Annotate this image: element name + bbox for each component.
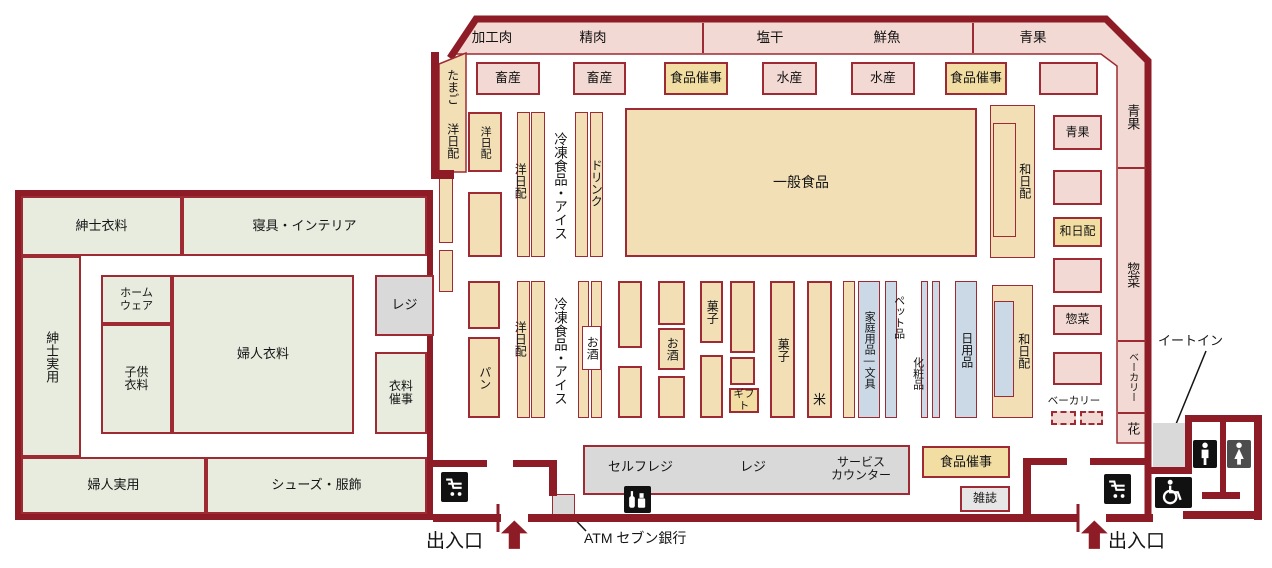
wall-restroom-divider-base	[1202, 492, 1240, 499]
dept-womens-daily-label: 婦人実用	[87, 478, 139, 493]
dept-gift: ギフト	[729, 388, 759, 413]
dept-western-dairy-box: 洋日配	[468, 112, 502, 172]
clothing-register-label: レジ	[391, 298, 417, 313]
dept-japanese-dairy-box-label: 和日配	[1059, 225, 1095, 238]
dept-box-unlabeled-r1	[1053, 170, 1102, 205]
label-western-dairy-upper: 洋日配	[511, 150, 528, 212]
shelf-unlabeled-4	[618, 366, 642, 418]
label-western-dairy-strip: 洋日配	[443, 112, 461, 170]
label-band-fresh-fish: 鮮魚	[862, 27, 912, 49]
dept-daily-goods: 日用品	[955, 281, 977, 418]
dept-homeware: ホーム ウェア	[101, 275, 172, 324]
dept-shoes-accessories-label: シューズ・服飾	[271, 478, 361, 493]
wall-eatin-right	[1185, 415, 1192, 472]
label-japanese-dairy-lower: 和日配	[1014, 318, 1032, 383]
dept-food-event-2-label: 食品催事	[950, 71, 1002, 86]
label-register: レジ	[728, 456, 778, 478]
label-eggs: たまご	[443, 64, 461, 110]
label-japanese-dairy-upper: 和日配	[1015, 148, 1033, 213]
atm-label: ATM セブン銀行	[584, 528, 686, 548]
label-band-produce-top-label: 青果	[1020, 30, 1047, 45]
wall-restroom-right	[1254, 415, 1262, 520]
shelf-unlabeled-9	[730, 357, 755, 385]
dept-deli-box-label: 惣菜	[1065, 313, 1089, 326]
label-band-fresh-fish-label: 鮮魚	[874, 30, 901, 45]
dept-magazines: 雑誌	[960, 486, 1010, 512]
wall-bottom-left	[433, 514, 501, 522]
dept-snacks-2: 菓子	[770, 281, 795, 418]
wall-restroom-divider	[1220, 415, 1226, 495]
dept-womens-daily: 婦人実用	[21, 457, 206, 514]
dept-general-food-label: 一般食品	[773, 175, 829, 191]
label-frozen-ice-lower-label: 冷凍食品・アイス	[552, 297, 567, 405]
dept-alcohol-2-label: お酒	[665, 337, 678, 361]
dept-alcohol-2: お酒	[658, 328, 685, 370]
dept-livestock-1-label: 畜産	[495, 71, 521, 86]
dept-bread-label: パン	[477, 366, 490, 390]
label-western-dairy-upper-label: 洋日配	[513, 163, 526, 199]
label-register-label: レジ	[740, 460, 766, 475]
label-cosmetics: 化粧品	[910, 342, 925, 404]
shelf-unlabeled-3	[618, 281, 642, 348]
label-drinks-label: ドリンク	[589, 159, 602, 207]
label-eggs-label: たまご	[445, 69, 458, 105]
dept-food-event-1: 食品催事	[664, 62, 728, 95]
dept-bread: パン	[468, 337, 500, 418]
label-western-dairy-strip-label: 洋日配	[445, 123, 458, 159]
dept-snacks-1: 菓子	[700, 281, 723, 343]
wall-egg-cap	[431, 170, 454, 179]
dept-western-dairy-box-label: 洋日配	[479, 126, 491, 159]
label-rice-label: 米	[813, 393, 826, 408]
dept-bedding-interior: 寝具・インテリア	[182, 196, 427, 256]
label-service-counter-label: サービス カウンター	[831, 456, 891, 483]
label-rice: 米	[809, 388, 830, 412]
dept-homeware-label: ホーム ウェア	[120, 287, 153, 312]
restroom-men-icon	[1193, 440, 1217, 468]
label-band-flower: 花	[1120, 416, 1144, 440]
dept-seafood-1-label: 水産	[776, 71, 802, 86]
bottle-recycle-icon	[624, 486, 651, 513]
label-alcohol-1: お酒	[582, 326, 601, 370]
wheelchair-icon	[1155, 477, 1192, 508]
dept-snacks-2-label: 菓子	[776, 338, 789, 362]
dept-general-food: 一般食品	[625, 108, 977, 257]
wall-checkout-corner-horiz	[1031, 458, 1067, 465]
dept-bedding-interior-label: 寝具・インテリア	[252, 219, 356, 234]
label-drinks: ドリンク	[587, 145, 604, 220]
dept-food-event-2: 食品催事	[945, 62, 1007, 95]
label-frozen-ice-lower: 冷凍食品・アイス	[549, 278, 570, 424]
shelf-unlabeled-8	[730, 281, 755, 353]
label-self-checkout-label: セルフレジ	[608, 460, 673, 475]
clothing-register: レジ	[375, 275, 434, 336]
entrance-label-right: 出入口	[1108, 526, 1165, 553]
dept-magazines-label: 雑誌	[973, 492, 997, 505]
label-band-flower-label: 花	[1125, 422, 1140, 435]
wall-bottom-right	[1106, 514, 1153, 522]
atm-kiosk	[552, 494, 575, 515]
dept-snacks-1-label: 菓子	[705, 300, 718, 324]
eat-in-label: イートイン	[1158, 330, 1223, 349]
shelf-strip	[932, 281, 940, 418]
entrance-arrow-icon	[500, 519, 529, 551]
dept-daily-goods-label: 日用品	[959, 332, 972, 368]
shelf-japanese-dairy-lower-inner	[994, 301, 1014, 397]
label-band-bakery: ベーカリー	[1123, 346, 1141, 408]
dept-mens-daily: 紳士実用	[21, 256, 81, 457]
shelf-narrow-2	[439, 250, 453, 292]
dept-household-stationery: 家庭用品―文具	[858, 281, 880, 418]
label-western-dairy-lower-label: 洋日配	[513, 321, 526, 357]
shelf-strip	[843, 281, 855, 418]
dept-mens-clothing-label: 紳士衣料	[75, 219, 127, 234]
wall-checkout-corner-vert	[1023, 458, 1031, 516]
label-bakery-small: ベーカリー	[1040, 395, 1108, 409]
shelf-unlabeled-5	[658, 281, 685, 325]
dept-food-event-1-label: 食品催事	[670, 71, 722, 86]
wall-restroom-bottom	[1183, 511, 1262, 519]
dept-produce-box-label: 青果	[1065, 126, 1089, 139]
label-japanese-dairy-upper-label: 和日配	[1017, 163, 1030, 199]
dept-seafood-1: 水産	[762, 62, 817, 95]
dept-clothing-event-label: 衣料 催事	[389, 380, 413, 407]
label-band-produce: 青果	[1120, 82, 1144, 152]
dept-food-event-3-label: 食品催事	[940, 455, 992, 470]
label-band-salted-dried-label: 塩干	[757, 30, 784, 45]
label-bakery-small-label: ベーカリー	[1048, 396, 1101, 408]
dept-japanese-dairy-box: 和日配	[1053, 217, 1102, 247]
cart-icon	[441, 472, 468, 502]
shelf-japanese-dairy-upper-inner	[993, 123, 1016, 237]
entrance-arrow-icon	[1080, 519, 1109, 551]
label-band-fresh-meat-label: 精肉	[580, 30, 607, 45]
dept-seafood-2-label: 水産	[870, 71, 896, 86]
wall-egg-left	[431, 52, 439, 178]
dept-food-event-3: 食品催事	[922, 446, 1010, 478]
shelf-unlabeled-6	[658, 376, 685, 418]
shelf-strip	[531, 281, 545, 418]
label-pet-goods: ペット品	[891, 283, 906, 351]
cart-icon	[1104, 474, 1131, 504]
label-frozen-ice-upper: 冷凍食品・アイス	[549, 113, 570, 259]
dept-shoes-accessories: シューズ・服飾	[206, 457, 427, 514]
label-service-counter: サービス カウンター	[815, 447, 907, 491]
store-floor-plan: 紳士衣料寝具・インテリア紳士実用婦人実用シューズ・服飾ホーム ウェア子供 衣料婦…	[0, 0, 1272, 568]
dept-livestock-2-label: 畜産	[586, 71, 612, 86]
dept-kids-clothing-label: 子供 衣料	[124, 366, 148, 393]
dept-livestock-1: 畜産	[476, 62, 540, 95]
bakery-stand-2	[1080, 411, 1103, 425]
shelf-unlabeled-1	[468, 192, 502, 257]
wall-corridor-vert	[549, 460, 557, 496]
restroom-women-icon	[1227, 440, 1251, 468]
shelf-narrow-1	[439, 178, 453, 243]
dept-box-unlabeled-r2	[1053, 258, 1102, 293]
dept-gift-label: ギフト	[731, 389, 757, 413]
dept-kids-clothing: 子供 衣料	[101, 324, 172, 434]
shelf-unlabeled-7	[700, 355, 723, 418]
wall-right-corridor	[1090, 458, 1146, 465]
dept-womens-clothing: 婦人衣料	[172, 275, 354, 434]
dept-household-stationery-label: 家庭用品―文具	[863, 311, 875, 389]
shelf-unlabeled-2	[468, 281, 500, 329]
label-alcohol-1-label: お酒	[585, 336, 598, 360]
label-band-fresh-meat: 精肉	[568, 27, 618, 49]
dept-livestock-2: 畜産	[573, 62, 626, 95]
bakery-stand-1	[1051, 411, 1076, 425]
label-band-produce-label: 青果	[1125, 104, 1140, 130]
label-band-processed-meat-label: 加工肉	[472, 30, 513, 45]
dept-box-unlabeled-top	[1039, 62, 1098, 95]
label-band-processed-meat: 加工肉	[462, 27, 522, 49]
wall-eatin-bottom	[1150, 467, 1192, 474]
dept-seafood-2: 水産	[851, 62, 915, 95]
dept-mens-daily-label: 紳士実用	[44, 331, 59, 383]
dept-womens-clothing-label: 婦人衣料	[237, 347, 289, 362]
wall-corridor-top-left	[427, 460, 487, 467]
entrance-label-left: 出入口	[426, 526, 483, 553]
dept-clothing-event: 衣料 催事	[375, 352, 427, 434]
label-band-produce-top: 青果	[1008, 27, 1058, 49]
label-band-deli-label: 惣菜	[1125, 262, 1140, 288]
wall-bottom-main	[528, 514, 1078, 522]
label-pet-goods-label: ペット品	[892, 295, 904, 339]
label-band-salted-dried: 塩干	[745, 27, 795, 49]
label-cosmetics-label: 化粧品	[911, 357, 923, 390]
shelf-strip	[531, 112, 545, 257]
eat-in-space	[1153, 423, 1185, 468]
dept-produce-box: 青果	[1053, 115, 1102, 150]
label-frozen-ice-upper-label: 冷凍食品・アイス	[552, 132, 567, 240]
dept-box-unlabeled-r3	[1053, 352, 1102, 385]
dept-mens-clothing: 紳士衣料	[21, 196, 182, 256]
label-western-dairy-lower: 洋日配	[511, 308, 528, 370]
label-band-bakery-label: ベーカリー	[1126, 352, 1137, 402]
label-japanese-dairy-lower-label: 和日配	[1016, 333, 1029, 369]
dept-deli-box: 惣菜	[1053, 305, 1102, 335]
label-band-deli: 惣菜	[1120, 240, 1144, 310]
label-self-checkout: セルフレジ	[593, 456, 688, 478]
